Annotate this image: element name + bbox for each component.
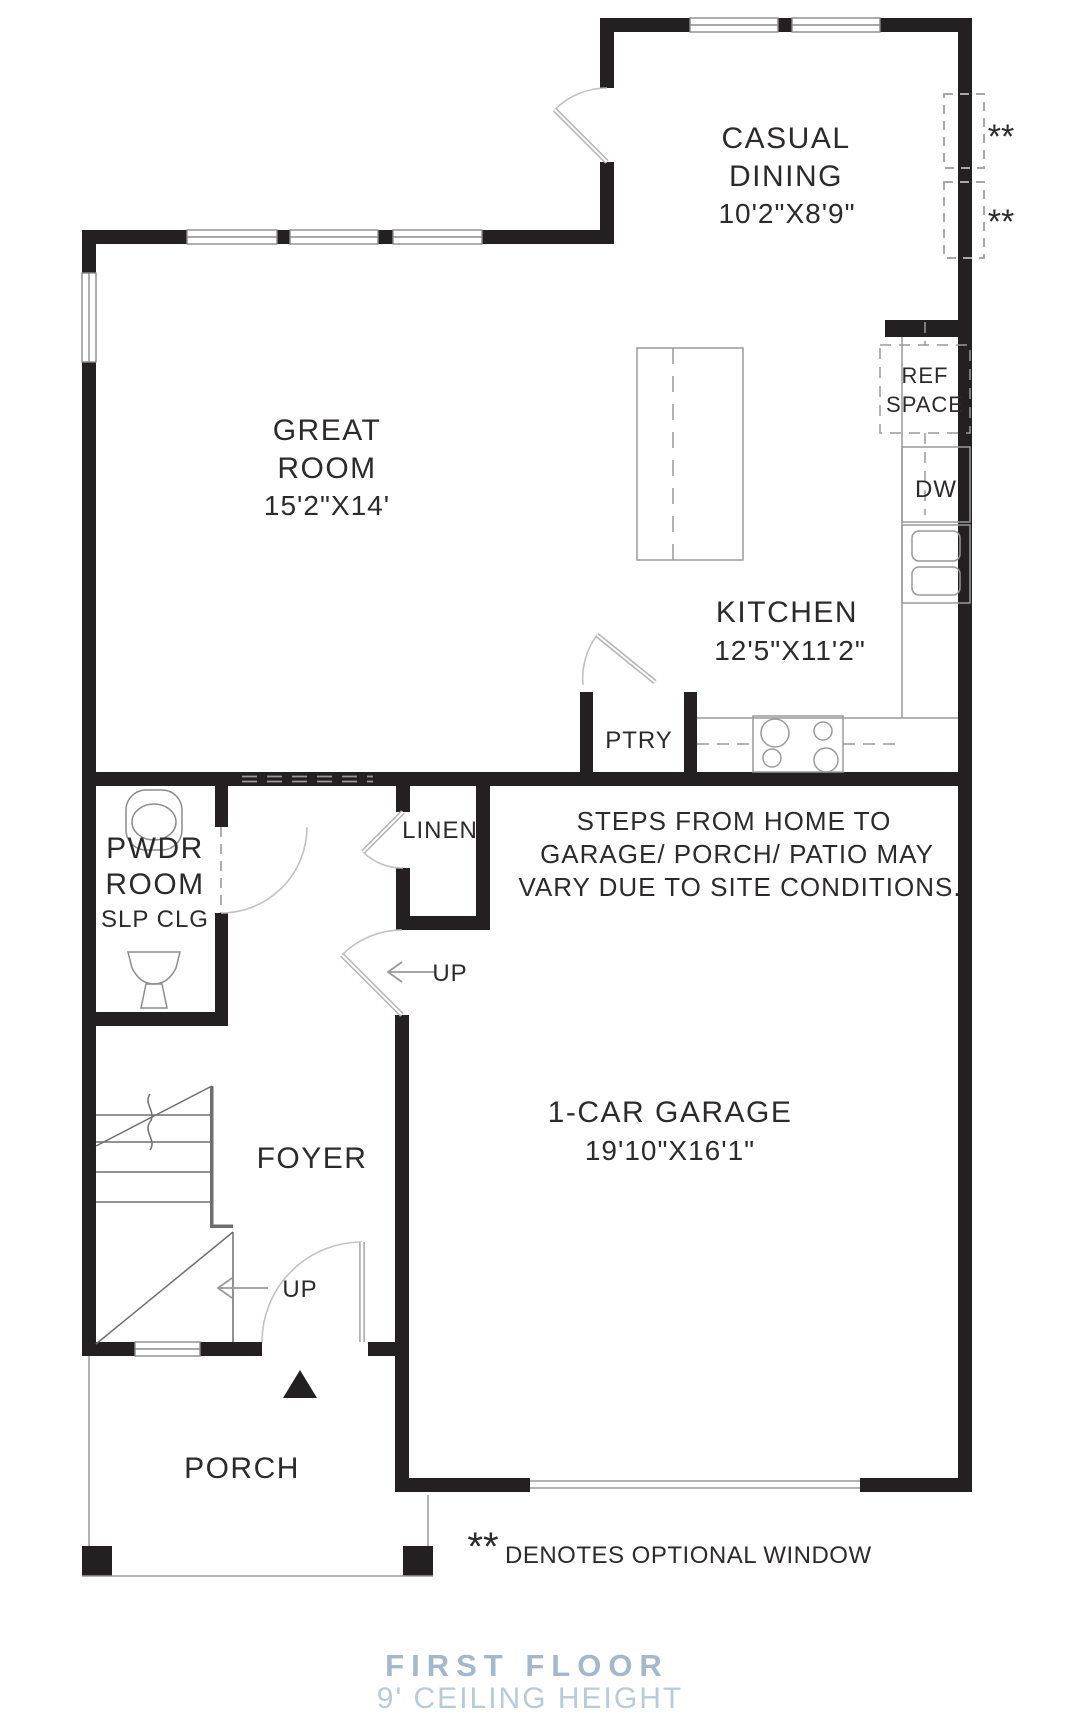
powder-room-label-1: PWDR (106, 832, 204, 865)
ref-space-label-1: REF (902, 363, 949, 388)
stove (753, 716, 843, 772)
porch-label: PORCH (184, 1452, 300, 1485)
garage-door (530, 1481, 860, 1488)
great-room-label-1: GREAT (273, 414, 382, 447)
understair-diagonal (96, 1232, 233, 1344)
up-label-stairs: UP (282, 1276, 317, 1303)
entry-arrow (283, 1370, 317, 1398)
site-note-line-3: VARY DUE TO SITE CONDITIONS. (518, 872, 961, 902)
casual-dining-label-1: CASUAL (721, 122, 850, 155)
window (792, 18, 880, 32)
up-arrow-garage (388, 962, 436, 982)
pantry-label: PTRY (605, 727, 673, 754)
kitchen-dims: 12'5"X11'2" (714, 635, 866, 666)
legend-symbol: ** (467, 1525, 498, 1569)
foyer-label: FOYER (257, 1142, 368, 1175)
window (187, 230, 277, 244)
powder-room-ceiling-note: SLP CLG (101, 906, 209, 933)
captions: FIRST FLOOR 9' CEILING HEIGHT (377, 1648, 683, 1715)
exterior-walls (82, 18, 972, 1576)
kitchen-island (637, 348, 743, 560)
garage-label: 1-CAR GARAGE (548, 1096, 793, 1129)
stair-break-diagonal (96, 1086, 212, 1146)
powder-room-label-2: ROOM (105, 868, 204, 901)
staircase (96, 1086, 233, 1344)
ceiling-height-subtitle: 9' CEILING HEIGHT (377, 1682, 683, 1715)
optional-window-marker-lower: ** (988, 203, 1014, 241)
dishwasher-label: DW (915, 476, 957, 503)
up-label-garage: UP (432, 960, 467, 987)
linen-door (363, 812, 403, 868)
window (135, 1342, 200, 1356)
floor-title: FIRST FLOOR (385, 1648, 669, 1683)
floor-plan-drawing: CASUAL DINING 10'2"X8'9" GREAT ROOM 15'2… (0, 0, 1080, 1719)
powder-room-door (221, 827, 307, 913)
room-labels: CASUAL DINING 10'2"X8'9" GREAT ROOM 15'2… (101, 118, 1014, 1485)
patio-door (555, 88, 607, 162)
site-note-line-1: STEPS FROM HOME TO (577, 806, 892, 836)
pantry-door (583, 635, 655, 685)
legend: ** DENOTES OPTIONAL WINDOW (467, 1525, 871, 1569)
legend-text: DENOTES OPTIONAL WINDOW (505, 1542, 872, 1569)
garage-dims: 19'10"X16'1" (585, 1135, 755, 1166)
window (290, 230, 378, 244)
ref-space-label-2: SPACE (886, 392, 964, 417)
optional-window-marker-upper: ** (988, 118, 1014, 156)
casual-dining-label-2: DINING (729, 160, 843, 193)
great-room-dims: 15'2"X14' (264, 490, 390, 521)
window (690, 18, 778, 32)
site-note-line-2: GARAGE/ PORCH/ PATIO MAY (540, 839, 934, 869)
casual-dining-dims: 10'2"X8'9" (718, 198, 855, 229)
window (82, 273, 96, 362)
great-room-label-2: ROOM (277, 452, 376, 485)
floor-plan-page: CASUAL DINING 10'2"X8'9" GREAT ROOM 15'2… (0, 0, 1080, 1719)
up-arrow-stairs (218, 1278, 268, 1298)
linen-label: LINEN (402, 817, 478, 844)
pedestal-sink (128, 952, 180, 1008)
window (393, 230, 482, 244)
kitchen-label: KITCHEN (716, 596, 858, 629)
